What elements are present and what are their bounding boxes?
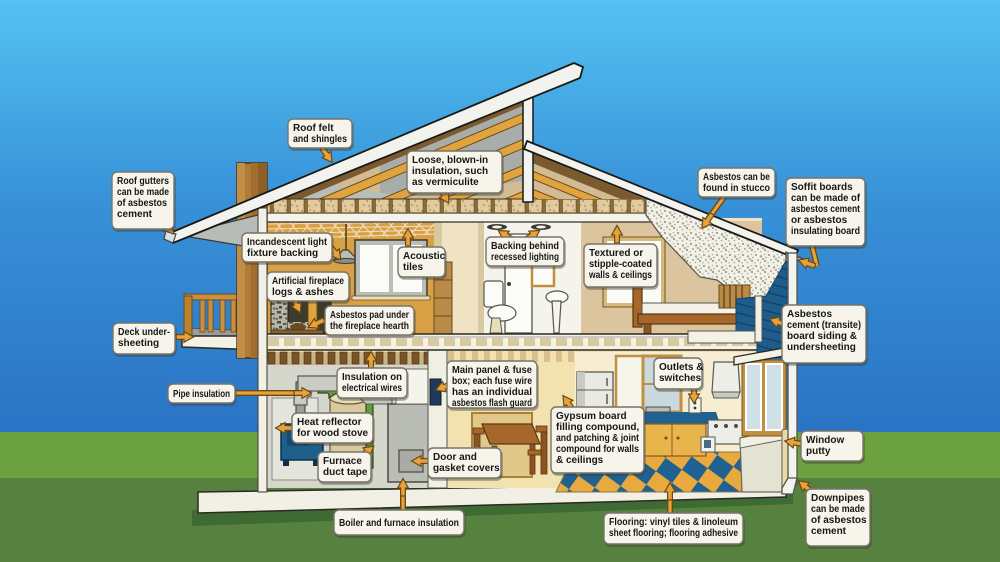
svg-text:Main panel & fuse: Main panel & fuse: [452, 365, 532, 376]
svg-text:Boiler and furnace insulation: Boiler and furnace insulation: [339, 518, 459, 529]
svg-text:Flooring: vinyl tiles & linole: Flooring: vinyl tiles & linoleum: [609, 517, 738, 528]
svg-text:Window: Window: [806, 435, 844, 446]
svg-text:can be made of: can be made of: [791, 193, 861, 204]
svg-text:& ceilings: & ceilings: [556, 455, 604, 466]
svg-text:box; each fuse wire: box; each fuse wire: [452, 376, 532, 387]
svg-text:gasket covers: gasket covers: [433, 463, 500, 474]
svg-text:has an individual: has an individual: [452, 387, 532, 398]
svg-text:Gypsum board: Gypsum board: [556, 411, 627, 422]
svg-text:asbestos flash guard: asbestos flash guard: [452, 398, 532, 409]
svg-text:cement: cement: [811, 526, 847, 537]
svg-text:Door and: Door and: [433, 452, 477, 463]
svg-text:switches: switches: [659, 373, 702, 384]
svg-text:cement: cement: [117, 209, 153, 220]
svg-text:for wood stove: for wood stove: [297, 428, 369, 439]
svg-text:Outlets &: Outlets &: [659, 362, 703, 373]
svg-text:Insulation on: Insulation on: [342, 372, 402, 383]
svg-text:Asbestos can be: Asbestos can be: [703, 172, 770, 183]
svg-text:Heat reflector: Heat reflector: [297, 417, 362, 428]
svg-text:electrical wires: electrical wires: [342, 383, 402, 394]
svg-text:duct tape: duct tape: [323, 467, 368, 478]
svg-text:stipple-coated: stipple-coated: [589, 259, 652, 270]
svg-text:logs & ashes: logs & ashes: [272, 287, 334, 298]
svg-text:the fireplace hearth: the fireplace hearth: [330, 321, 409, 332]
svg-text:Roof felt: Roof felt: [293, 123, 334, 134]
svg-text:Artificial fireplace: Artificial fireplace: [272, 276, 344, 287]
svg-text:as vermiculite: as vermiculite: [412, 177, 479, 188]
svg-text:asbestos cement: asbestos cement: [791, 204, 861, 215]
svg-text:of asbestos: of asbestos: [811, 515, 867, 526]
svg-text:Deck under-: Deck under-: [118, 327, 170, 338]
svg-text:sheet flooring; flooring adhes: sheet flooring; flooring adhesive: [609, 528, 738, 539]
svg-text:undersheeting: undersheeting: [787, 342, 856, 353]
svg-text:Textured or: Textured or: [589, 248, 643, 259]
svg-text:and patching & joint: and patching & joint: [556, 433, 640, 444]
svg-text:Roof gutters: Roof gutters: [117, 176, 169, 187]
svg-text:recessed lighting: recessed lighting: [491, 252, 559, 263]
svg-text:compound for walls: compound for walls: [556, 444, 639, 455]
svg-text:tiles: tiles: [403, 262, 423, 273]
svg-text:Incandescent light: Incandescent light: [247, 237, 328, 248]
svg-text:Furnace: Furnace: [323, 456, 362, 467]
svg-text:found in stucco: found in stucco: [703, 183, 770, 194]
svg-text:filling compound,: filling compound,: [556, 422, 640, 433]
svg-text:can be made: can be made: [811, 504, 865, 515]
svg-text:or asbestos: or asbestos: [791, 215, 848, 226]
svg-text:of asbestos: of asbestos: [117, 198, 167, 209]
svg-text:and shingles: and shingles: [293, 134, 347, 145]
svg-text:Loose, blown-in: Loose, blown-in: [412, 155, 488, 166]
svg-text:Downpipes: Downpipes: [811, 493, 865, 504]
svg-text:can be made: can be made: [117, 187, 169, 198]
svg-text:walls & ceilings: walls & ceilings: [588, 270, 652, 281]
svg-text:Pipe insulation: Pipe insulation: [173, 389, 230, 400]
svg-text:putty: putty: [806, 446, 831, 457]
svg-text:Backing behind: Backing behind: [491, 241, 559, 252]
svg-text:cement (transite): cement (transite): [787, 320, 861, 331]
svg-text:insulation, such: insulation, such: [412, 166, 488, 177]
svg-text:sheeting: sheeting: [118, 338, 159, 349]
svg-text:Asbestos: Asbestos: [787, 309, 832, 320]
svg-text:Acoustic: Acoustic: [403, 251, 446, 262]
svg-text:insulating board: insulating board: [791, 226, 860, 237]
svg-text:Soffit boards: Soffit boards: [791, 182, 853, 193]
svg-text:Asbestos pad under: Asbestos pad under: [330, 310, 409, 321]
svg-text:fixture backing: fixture backing: [247, 248, 318, 259]
svg-text:board siding &: board siding &: [787, 331, 857, 342]
